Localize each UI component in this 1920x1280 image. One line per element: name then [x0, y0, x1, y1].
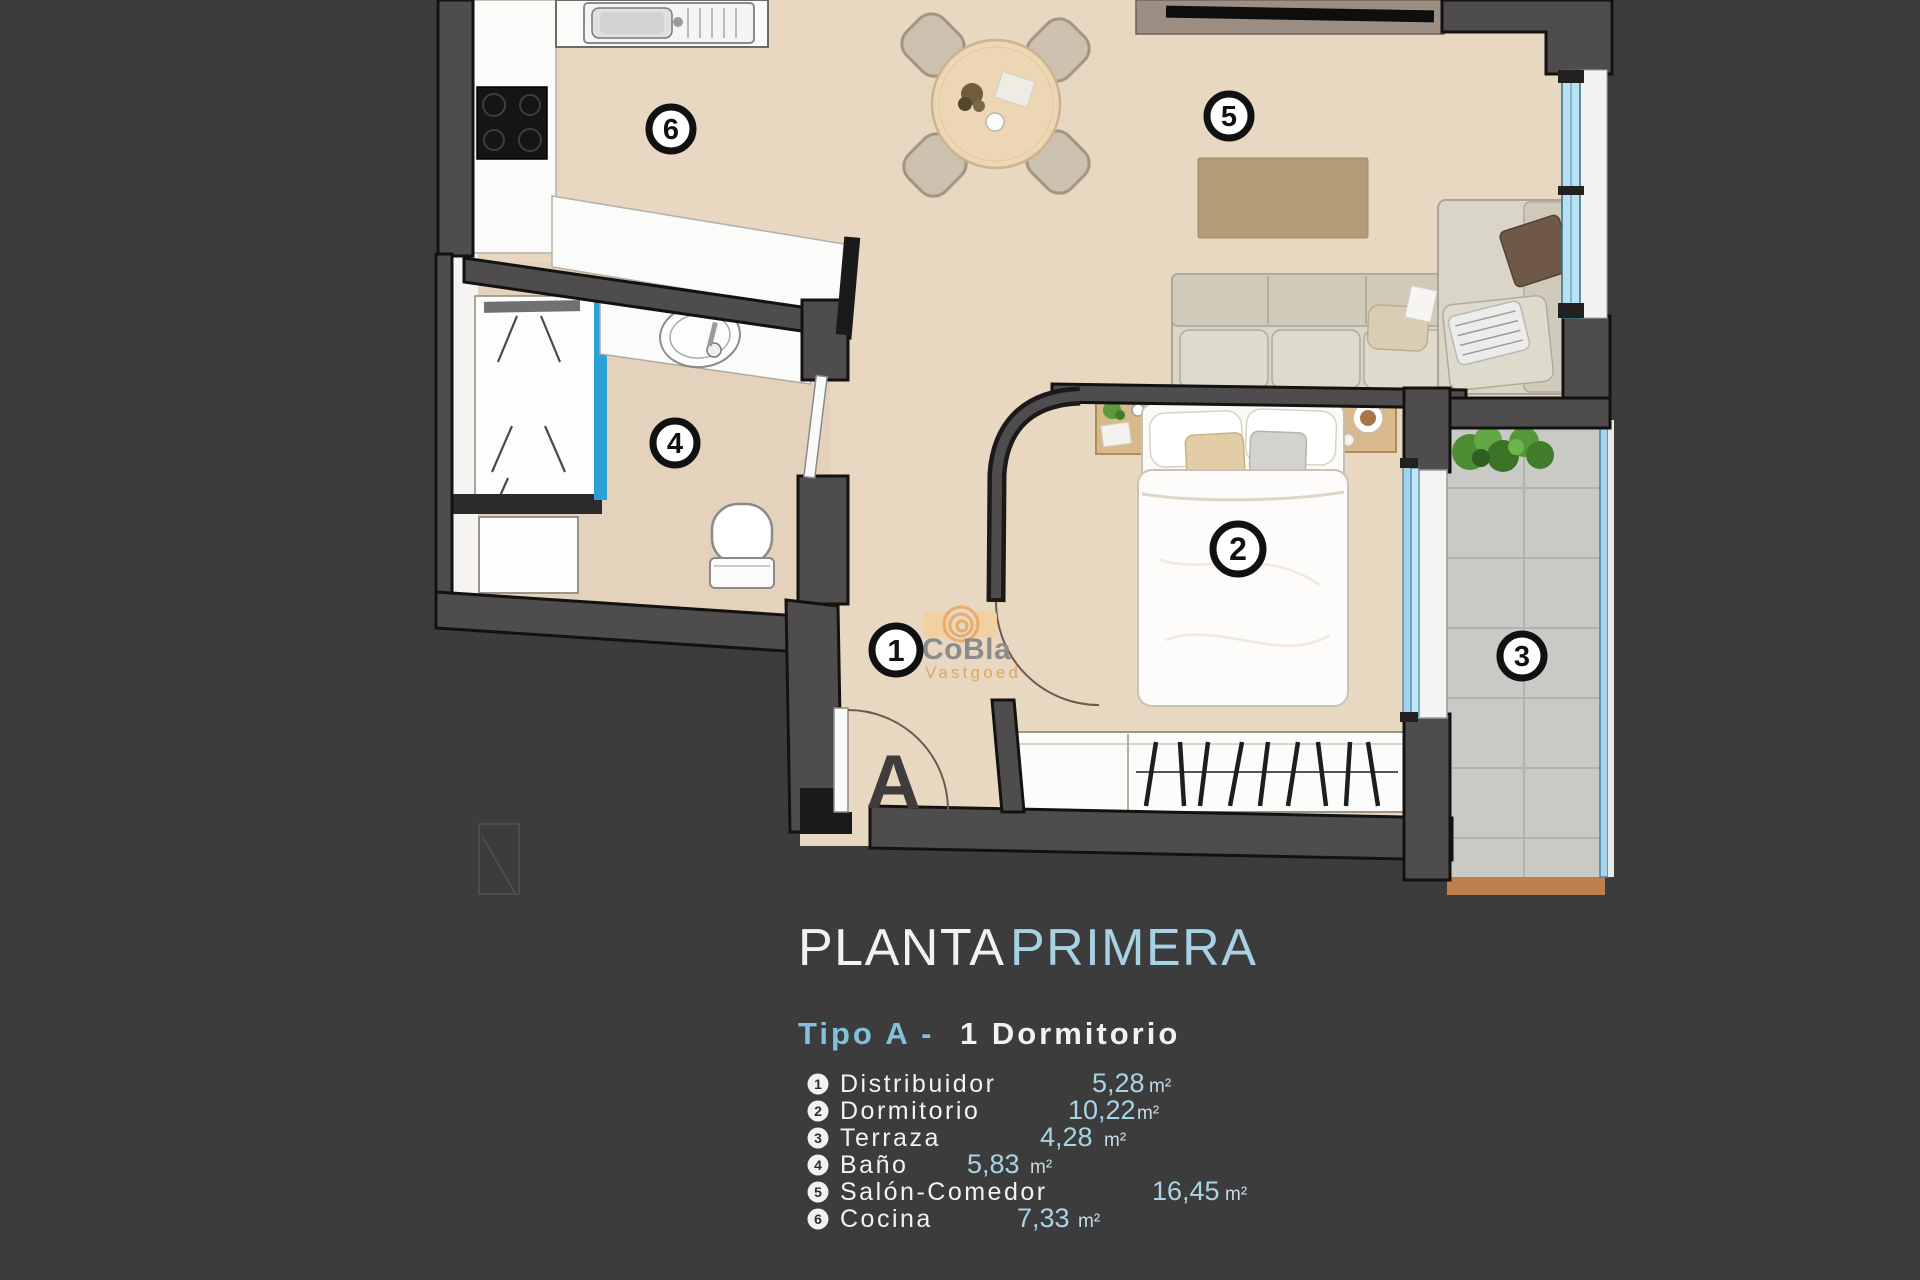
- wardrobe: [1008, 732, 1404, 812]
- svg-text:3: 3: [814, 1130, 822, 1146]
- legend-area: 4,28: [1040, 1122, 1093, 1152]
- legend-area: 10,22: [1068, 1095, 1136, 1125]
- legend-area: 16,45: [1152, 1176, 1220, 1206]
- stair-symbol: [479, 824, 519, 894]
- page-subtitle: Tipo A - 1 Dormitorio: [798, 1016, 1180, 1051]
- svg-text:4: 4: [667, 428, 683, 460]
- entrance-door-leaf: [834, 708, 848, 812]
- legend-name: Terraza: [840, 1124, 941, 1152]
- bathroom-cabinet: [479, 517, 578, 593]
- cooktop: [477, 87, 547, 159]
- legend-area: 7,33: [1017, 1203, 1070, 1233]
- legend-area: 5,28: [1092, 1068, 1145, 1098]
- wall-left-top: [438, 0, 473, 256]
- page-title: PLANTA PRIMERA: [798, 919, 1257, 977]
- rug: [1198, 158, 1368, 238]
- title-planta: PLANTA: [798, 919, 1004, 977]
- legend-unit: m²: [1225, 1184, 1247, 1205]
- svg-text:4: 4: [814, 1157, 822, 1173]
- dining-table: [932, 40, 1060, 168]
- marker-bano: 4: [653, 421, 697, 465]
- legend-name: Cocina: [840, 1205, 933, 1233]
- svg-text:1: 1: [814, 1076, 822, 1092]
- marker-distribuidor: 1: [872, 626, 920, 674]
- accent-pillow-gray: [1249, 431, 1306, 475]
- wall-bath-right-lower: [798, 476, 848, 604]
- watermark-subtitle: Vastgoed: [925, 663, 1021, 682]
- subtitle-tipo: Tipo A -: [798, 1016, 935, 1051]
- svg-text:6: 6: [814, 1211, 822, 1227]
- svg-text:6: 6: [663, 114, 679, 146]
- legend-unit: m²: [1149, 1076, 1171, 1097]
- marker-terraza: 3: [1500, 634, 1544, 678]
- wall-left-lower: [436, 254, 452, 620]
- legend-row-dormitorio: 2 Dormitorio 10,22 m²: [808, 1095, 1160, 1125]
- terrace-edge-band: [1447, 877, 1605, 895]
- tv-cabinet: [1136, 0, 1444, 34]
- legend-unit: m²: [1104, 1130, 1126, 1151]
- marker-salon-comedor: 5: [1207, 94, 1251, 138]
- wall-terrace-left-lower: [1404, 714, 1450, 880]
- legend-row-cocina: 6 Cocina 7,33 m²: [808, 1203, 1101, 1233]
- slider-glass: [1403, 464, 1411, 716]
- duvet: [1138, 470, 1348, 706]
- shower-bar: [484, 300, 580, 313]
- legend-row-distribuidor: 1 Distribuidor 5,28 m²: [808, 1068, 1172, 1098]
- svg-text:1: 1: [887, 633, 904, 668]
- watermark-brand: CoBla: [922, 633, 1011, 666]
- svg-text:2: 2: [1229, 531, 1247, 567]
- slider-glass: [1411, 468, 1419, 716]
- svg-text:5: 5: [1221, 101, 1237, 133]
- svg-text:2: 2: [814, 1103, 822, 1119]
- kitchen-sink-counter: [556, 0, 768, 47]
- legend-row-bano: 4 Baño 5,83 m²: [808, 1149, 1053, 1179]
- legend-name: Salón-Comedor: [840, 1178, 1048, 1206]
- shower-curb: [452, 494, 602, 514]
- shower: [452, 296, 607, 514]
- marker-cocina: 6: [649, 107, 693, 151]
- toilet: [710, 504, 774, 588]
- subtitle-dormitorio: 1 Dormitorio: [960, 1016, 1180, 1051]
- legend-row-salon-comedor: 5 Salón-Comedor 16,45 m²: [808, 1176, 1248, 1206]
- title-primera: PRIMERA: [1010, 919, 1257, 977]
- floorplan-page: CoBla Vastgoed A 1 2 3 4 5: [0, 0, 1920, 1280]
- legend-unit: m²: [1078, 1211, 1100, 1232]
- legend-row-terraza: 3 Terraza 4,28 m²: [808, 1122, 1127, 1152]
- legend-unit: m²: [1137, 1103, 1159, 1124]
- entrance-label: A: [866, 740, 921, 825]
- legend-name: Baño: [840, 1151, 908, 1179]
- marker-dormitorio: 2: [1213, 524, 1263, 574]
- terrace-glass-railing: [1600, 420, 1608, 877]
- bedroom-terrace-slider: [1400, 458, 1447, 722]
- wall-living-right: [1563, 316, 1610, 400]
- floorplan-canvas: CoBla Vastgoed A 1 2 3 4 5: [0, 0, 1920, 1280]
- svg-text:5: 5: [814, 1184, 822, 1200]
- svg-text:3: 3: [1514, 641, 1530, 673]
- living-window: [1558, 70, 1607, 318]
- wall-terrace-top: [1443, 398, 1610, 428]
- terrace-railing-cap: [1608, 420, 1614, 877]
- legend-name: Distribuidor: [840, 1070, 996, 1098]
- legend-unit: m²: [1030, 1157, 1052, 1178]
- legend-name: Dormitorio: [840, 1097, 980, 1125]
- legend-area: 5,83: [967, 1149, 1020, 1179]
- legend: 1 Distribuidor 5,28 m² 2 Dormitorio 10,2…: [808, 1068, 1248, 1233]
